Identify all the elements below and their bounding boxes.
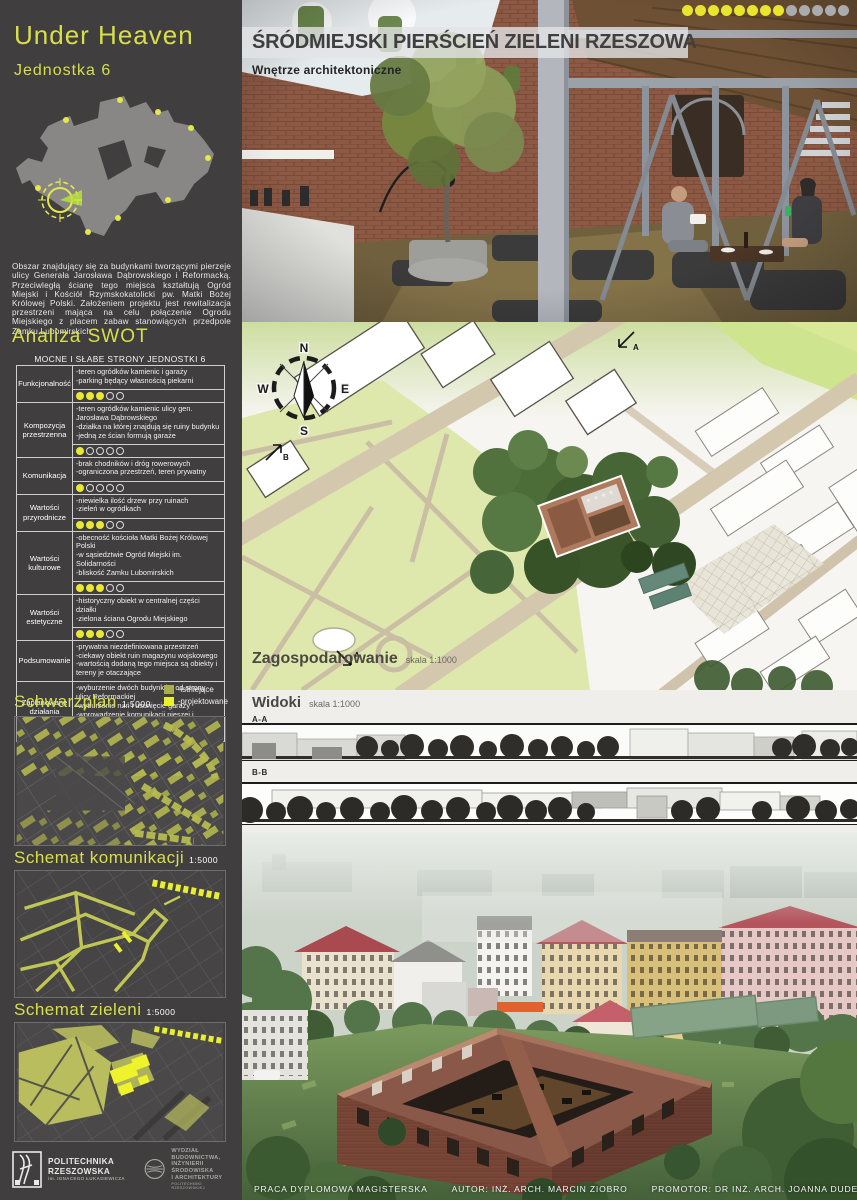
swot-row-label: Komunikacja — [17, 458, 73, 494]
score-dot-empty — [106, 630, 114, 638]
project-title: Under Heaven — [14, 20, 194, 51]
views-heading: Widokiskala 1:1000 — [252, 694, 360, 711]
score-dot-empty — [116, 521, 124, 529]
komunikacja-heading: Schemat komunikacji1:5000 — [14, 848, 218, 868]
score-dot-filled — [96, 392, 104, 400]
section-a-art — [242, 725, 857, 760]
score-dot-empty — [86, 447, 94, 455]
score-dot-empty — [86, 484, 94, 492]
swot-item: -zielona ściana Ogrodu Miejskiego — [76, 615, 221, 624]
swot-table-row: Funkcjonalność -teren ogródków kamienic … — [17, 366, 224, 403]
score-dot-filled — [86, 521, 94, 529]
site-plan: N E S W A B A — [242, 322, 857, 690]
aerial-render: PRACA DYPLOMOWA MAGISTERSKAAUTOR: INŻ. A… — [242, 832, 857, 1200]
swot-table-row: Podsumowanie -prywatna niezdefiniowana p… — [17, 641, 224, 683]
interior-render: ŚRÓDMIEJSKI PIERŚCIEŃ ZIELENI RZESZOWA W… — [242, 0, 857, 322]
zielen-scale: 1:5000 — [147, 1007, 176, 1017]
swot-row-items: -teren ogródków kamienic i garaży-parkin… — [73, 366, 224, 389]
section-marker-a1-label: A — [633, 343, 639, 352]
swot-item: -bliskość Zamku Lubomirskich — [76, 569, 221, 578]
swot-row-items: -brak chodników i dróg rowerowych-ograni… — [73, 458, 224, 481]
schwarzplan-heading: Schwarzplan1:5000 — [14, 692, 151, 712]
faculty-subline: POLITECHNIKI RZESZOWSKIEJ — [171, 1182, 234, 1191]
score-dot-filled — [76, 447, 84, 455]
map-legend: -istniejące-projektowane — [164, 685, 228, 706]
progress-dot-filled — [682, 5, 693, 16]
score-dot-filled — [96, 584, 104, 592]
progress-dot-empty — [825, 5, 836, 16]
komunikacja-map — [14, 870, 226, 998]
swot-row-label: Wartości kulturowe — [17, 532, 73, 594]
schwarzplan-map — [14, 716, 226, 846]
compass-n: N — [300, 341, 309, 355]
progress-dot-empty — [799, 5, 810, 16]
swot-row-score — [73, 581, 224, 594]
progress-dot-filled — [773, 5, 784, 16]
score-dot-empty — [116, 630, 124, 638]
compass-s: S — [300, 424, 308, 438]
zielen-heading: Schemat zieleni1:5000 — [14, 1000, 176, 1020]
progress-dot-empty — [812, 5, 823, 16]
legend-row: -istniejące — [164, 685, 228, 694]
score-dot-empty — [106, 584, 114, 592]
poster-title: ŚRÓDMIEJSKI PIERŚCIEŃ ZIELENI RZESZOWA — [252, 31, 697, 54]
swot-table-row: Wartości estetyczne -historyczny obiekt … — [17, 595, 224, 641]
footer-author: AUTOR: INŻ. ARCH. MARCIN ZIOBRO — [452, 1184, 628, 1194]
swot-item: -jedną ze ścian formują garaże — [76, 432, 221, 441]
score-dot-filled — [96, 521, 104, 529]
aerial-render-art — [242, 832, 857, 1200]
zielen-heading-label: Schemat zieleni — [14, 1000, 142, 1019]
footer-project: PRACA DYPLOMOWA MAGISTERSKA — [254, 1184, 428, 1194]
swot-table-row: Wartości kulturowe -obecność kościoła Ma… — [17, 532, 224, 595]
score-dot-filled — [86, 584, 94, 592]
footer-credits: PRACA DYPLOMOWA MAGISTERSKAAUTOR: INŻ. A… — [242, 1184, 857, 1194]
swot-row-label: Kompozycja przestrzenna — [17, 403, 73, 457]
komunikacja-heading-label: Schemat komunikacji — [14, 848, 184, 867]
section-a-strip — [242, 723, 857, 761]
swot-item: -ograniczona przestrzeń, teren prywatny — [76, 468, 221, 477]
views-heading-label: Widoki — [252, 694, 301, 711]
swot-row-content: -teren ogródków kamienic i garaży-parkin… — [73, 366, 224, 402]
schwarzplan-scale: 1:5000 — [122, 699, 151, 709]
legend-label: -istniejące — [178, 685, 214, 694]
score-dot-empty — [106, 521, 114, 529]
progress-dot-filled — [708, 5, 719, 16]
score-dot-filled — [76, 630, 84, 638]
site-plan-art: N E S W A B A — [242, 322, 857, 690]
legend-swatch — [164, 685, 174, 694]
faculty-line1: WYDZIAŁ — [171, 1148, 234, 1155]
swot-item: -obecność kościoła Matki Bożej Królowej … — [76, 534, 221, 552]
progress-dot-filled — [747, 5, 758, 16]
progress-dot-filled — [721, 5, 732, 16]
swot-row-label: Wartości estetyczne — [17, 595, 73, 640]
faculty-logo-icon — [144, 1156, 165, 1182]
swot-table-title: MOCNE I SŁABE STRONY JEDNOSTKI 6 — [16, 354, 224, 364]
plan-scale: skala 1:1000 — [406, 655, 457, 665]
legend-label: -projektowane — [178, 697, 228, 706]
swot-row-content: -obecność kościoła Matki Bożej Królowej … — [73, 532, 224, 594]
render-caption: Wnętrze architektoniczne — [252, 63, 402, 77]
score-dot-empty — [106, 447, 114, 455]
swot-item: -wartością dodaną tego miejsca są obiekt… — [76, 660, 221, 678]
zielen-map — [14, 1022, 226, 1142]
swot-row-items: -obecność kościoła Matki Bożej Królowej … — [73, 532, 224, 581]
footer-promoter: PROMOTOR: DR INŻ. ARCH. JOANNA DUDEK — [652, 1184, 857, 1194]
section-b-label: B-B — [252, 768, 268, 777]
komunikacja-scale: 1:5000 — [189, 855, 218, 865]
intro-paragraph: Obszar znajdujący się za budynkami tworz… — [12, 262, 231, 336]
score-dot-filled — [86, 392, 94, 400]
score-dot-filled — [76, 521, 84, 529]
university-logo-block: POLITECHNIKA RZESZOWSKA im. IGNACEGO ŁUK… — [12, 1151, 130, 1188]
section-b-strip — [242, 782, 857, 825]
swot-row-score — [73, 389, 224, 402]
swot-item: -w sąsiedztwie Ogród Miejski im. Solidar… — [76, 551, 221, 569]
views-scale: skala 1:1000 — [309, 699, 360, 709]
score-dot-empty — [116, 584, 124, 592]
poster: Under Heaven Jednostka 6 Obszar znajdują… — [0, 0, 857, 1200]
sidebar: Under Heaven Jednostka 6 Obszar znajdują… — [0, 0, 242, 1200]
swot-row-items: -prywatna niezdefiniowana przestrzeń-cie… — [73, 641, 224, 682]
unit-locator-map — [8, 88, 234, 250]
faculty-logo-text: WYDZIAŁ BUDOWNICTWA, INŻYNIERII ŚRODOWIS… — [171, 1148, 234, 1191]
section-marker-b1-label: B — [283, 453, 289, 462]
swot-table-row: Wartości przyrodnicze -niewielka ilość d… — [17, 495, 224, 532]
swot-row-content: -niewielka ilość drzew przy ruinach-ziel… — [73, 495, 224, 531]
swot-row-score — [73, 481, 224, 494]
swot-row-label: Wartości przyrodnicze — [17, 495, 73, 531]
swot-row-items: -niewielka ilość drzew przy ruinach-ziel… — [73, 495, 224, 518]
plan-heading: Zagospodarowanieskala 1:1000 — [252, 650, 457, 668]
swot-row-content: -prywatna niezdefiniowana przestrzeń-cie… — [73, 641, 224, 682]
legend-swatch — [164, 697, 174, 706]
swot-row-label: Funkcjonalność — [17, 366, 73, 402]
score-dot-empty — [106, 392, 114, 400]
score-dot-empty — [96, 484, 104, 492]
swot-item: -teren ogródków kamienic ulicy gen. Jaro… — [76, 405, 221, 423]
progress-dots — [682, 5, 849, 16]
progress-dot-empty — [786, 5, 797, 16]
schwarzplan-heading-label: Schwarzplan — [14, 692, 117, 711]
compass-w: W — [257, 382, 269, 396]
swot-item: -historyczny obiekt w centralnej części … — [76, 597, 221, 615]
university-subname: im. IGNACEGO ŁUKASIEWICZA — [48, 1176, 130, 1181]
swot-row-score — [73, 518, 224, 531]
swot-item: -parking będący własnością piekarni — [76, 377, 221, 386]
progress-dot-filled — [734, 5, 745, 16]
university-logo-text: POLITECHNIKA RZESZOWSKA im. IGNACEGO ŁUK… — [48, 1157, 130, 1181]
swot-row-score — [73, 627, 224, 640]
swot-row-content: -teren ogródków kamienic ulicy gen. Jaro… — [73, 403, 224, 457]
swot-table-row: Kompozycja przestrzenna -teren ogródków … — [17, 403, 224, 458]
swot-row-score — [73, 444, 224, 457]
legend-row: -projektowane — [164, 697, 228, 706]
score-dot-empty — [116, 484, 124, 492]
score-dot-empty — [116, 392, 124, 400]
swot-row-label: Podsumowanie — [17, 641, 73, 682]
score-dot-filled — [76, 392, 84, 400]
university-name: POLITECHNIKA RZESZOWSKA — [48, 1157, 130, 1176]
swot-row-items: -historyczny obiekt w centralnej części … — [73, 595, 224, 627]
score-dot-empty — [96, 447, 104, 455]
faculty-line4: I ARCHITEKTURY — [171, 1175, 234, 1182]
faculty-logo-block: WYDZIAŁ BUDOWNICTWA, INŻYNIERII ŚRODOWIS… — [144, 1148, 234, 1191]
section-b-art — [242, 784, 857, 824]
score-dot-filled — [96, 630, 104, 638]
plan-heading-label: Zagospodarowanie — [252, 650, 398, 667]
progress-dot-filled — [760, 5, 771, 16]
swot-table-row: Komunikacja -brak chodników i dróg rower… — [17, 458, 224, 495]
swot-row-content: -historyczny obiekt w centralnej części … — [73, 595, 224, 640]
faculty-line3: INŻYNIERII ŚRODOWISKA — [171, 1161, 234, 1174]
score-dot-filled — [76, 584, 84, 592]
views-section: Widokiskala 1:1000 A-A — [242, 690, 857, 832]
swot-row-content: -brak chodników i dróg rowerowych-ograni… — [73, 458, 224, 494]
swot-item: -zieleń w ogródkach — [76, 505, 221, 514]
footer-logos: POLITECHNIKA RZESZOWSKA im. IGNACEGO ŁUK… — [12, 1148, 234, 1191]
politechnika-logo-icon — [12, 1151, 42, 1188]
score-dot-empty — [106, 484, 114, 492]
score-dot-filled — [76, 484, 84, 492]
score-dot-empty — [116, 447, 124, 455]
compass-e: E — [341, 382, 349, 396]
progress-dot-filled — [695, 5, 706, 16]
unit-subtitle: Jednostka 6 — [14, 62, 111, 80]
poster-title-band: ŚRÓDMIEJSKI PIERŚCIEŃ ZIELENI RZESZOWA — [242, 27, 688, 58]
main-column: ŚRÓDMIEJSKI PIERŚCIEŃ ZIELENI RZESZOWA W… — [242, 0, 857, 1200]
swot-heading: Analiza SWOT — [12, 326, 149, 348]
swot-row-items: -teren ogródków kamienic ulicy gen. Jaro… — [73, 403, 224, 444]
progress-dot-empty — [838, 5, 849, 16]
score-dot-filled — [86, 630, 94, 638]
